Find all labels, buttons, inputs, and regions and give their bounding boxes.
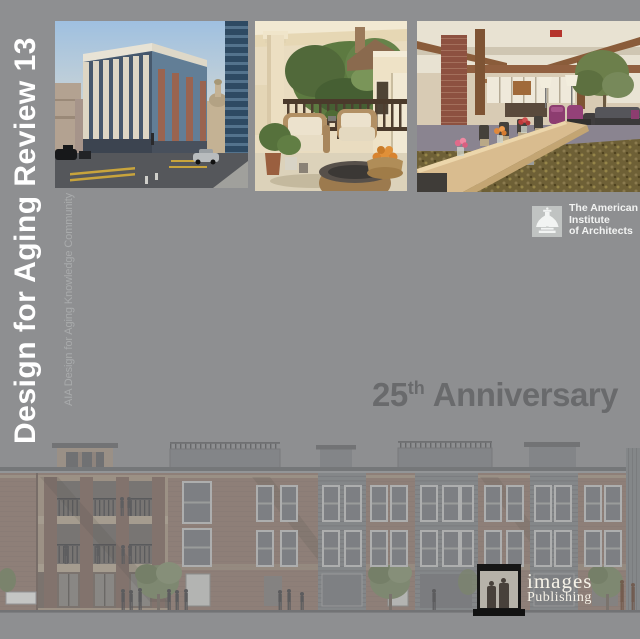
- vertical-subtitle: AIA Design for Aging Knowledge Community: [63, 193, 75, 406]
- anniversary-ordinal: th: [408, 378, 425, 398]
- exit-sign: [550, 30, 562, 37]
- photo-lobby-interior: [417, 21, 640, 192]
- aia-institute-text: The American Institute of Architects: [569, 203, 638, 238]
- anniversary-word: Anniversary: [433, 376, 618, 413]
- book-cover: Design for Aging Review 13 AIA Design fo…: [0, 0, 640, 639]
- publisher-logo-door: [477, 564, 521, 611]
- anniversary-text: 25thAnniversary: [372, 376, 618, 414]
- person-silhouette: [499, 583, 509, 608]
- aia-eagle-logo-icon: [532, 206, 562, 237]
- aia-line-1: The American: [569, 203, 638, 215]
- photo-city-building: [55, 21, 248, 188]
- vertical-title: Design for Aging Review 13: [9, 37, 42, 444]
- anniversary-number: 25: [372, 376, 408, 413]
- person-silhouette: [487, 586, 496, 608]
- aia-line-3: of Architects: [569, 226, 638, 238]
- publisher-division: Publishing: [527, 590, 592, 606]
- photo-porch: [255, 21, 407, 191]
